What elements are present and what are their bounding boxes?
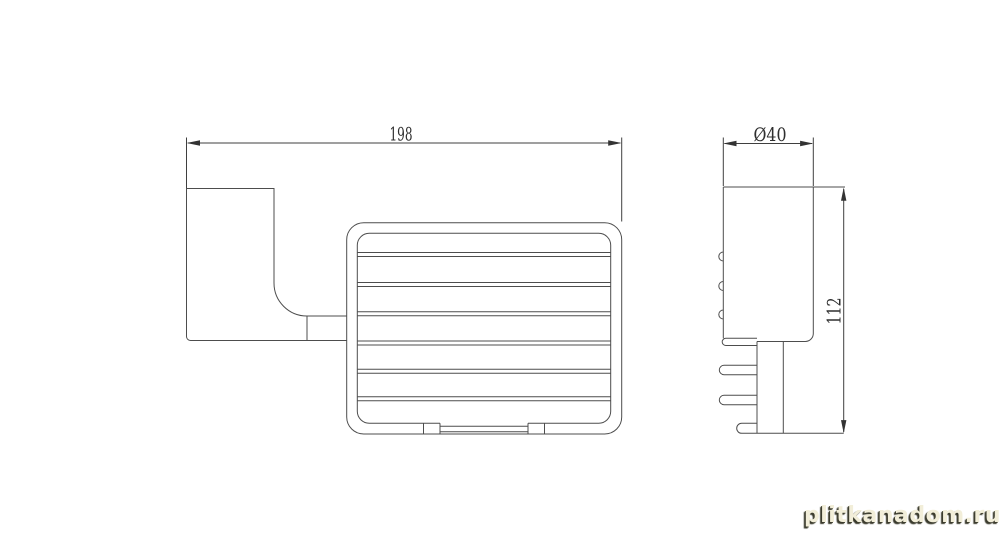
dimension-value-width: 198 <box>390 124 413 146</box>
wall-plate <box>187 189 347 341</box>
dimension-height-112: 112 <box>824 188 847 434</box>
dimension-width-198: 198 <box>187 124 622 222</box>
basket-inner-frame <box>357 233 610 423</box>
arrowhead-down-icon <box>841 420 846 433</box>
technical-drawing-page: 198 <box>0 0 1000 537</box>
technical-drawing: 198 <box>0 0 1000 537</box>
wire-bump-3 <box>719 310 723 319</box>
body-bottom-hook <box>722 338 757 345</box>
prong-1 <box>719 365 757 374</box>
bottom-bar-detail <box>424 423 545 434</box>
arrowhead-right-icon <box>608 140 622 145</box>
arrowhead-up-icon <box>841 188 846 201</box>
arrowhead-left-icon <box>723 141 736 146</box>
basket-outer-frame <box>347 223 622 434</box>
dimension-value-height: 112 <box>824 298 846 325</box>
body-right-bottom-edge <box>757 187 813 342</box>
wire-bump-1 <box>719 252 723 261</box>
side-view: Ø40 <box>719 124 847 433</box>
wire-bump-2 <box>719 282 723 291</box>
arrowhead-left-icon <box>187 140 201 145</box>
wall-plate-outline <box>187 189 347 341</box>
stem-and-prongs <box>719 342 843 434</box>
front-view: 198 <box>187 124 622 435</box>
dimension-value-diameter: Ø40 <box>754 124 787 146</box>
prong-2 <box>719 395 757 404</box>
watermark-text: plitkanadom.ru <box>804 503 1000 528</box>
dimension-diameter-40: Ø40 <box>723 124 813 186</box>
shelf-wires <box>357 253 610 401</box>
prong-3-and-bottom-line <box>737 423 844 433</box>
arrowhead-right-icon <box>800 141 813 146</box>
basket-frame <box>347 223 622 434</box>
